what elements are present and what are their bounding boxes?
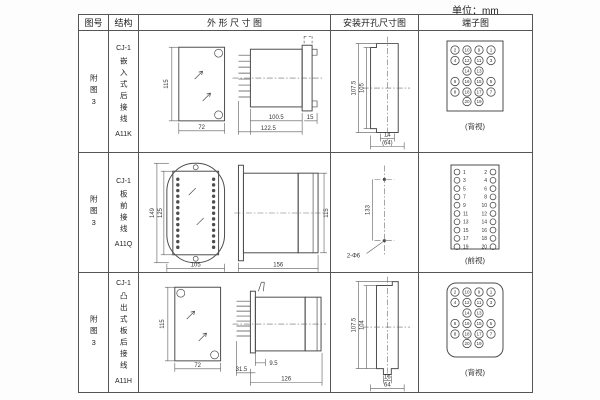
dim-side-height: 115 xyxy=(324,207,330,217)
dim-front-width: 72 xyxy=(194,363,201,369)
svg-text:19: 19 xyxy=(463,244,469,250)
svg-text:5: 5 xyxy=(490,321,493,326)
dim-side-d3: 126 xyxy=(281,377,292,383)
row2-terminal-cell: (前视) 1357911131517192468101214161820 xyxy=(419,153,532,273)
dim-side-d2: 9.5 xyxy=(269,361,278,367)
terminal-pin xyxy=(490,210,496,216)
glass-mark xyxy=(189,188,204,225)
terminal-caption: (背视) xyxy=(465,121,485,131)
svg-text:7: 7 xyxy=(490,89,493,94)
row2-fig-no-text: 附图3 xyxy=(90,195,98,231)
terminal-pin xyxy=(454,235,460,241)
terminal-pin xyxy=(454,218,460,224)
terminal-pin xyxy=(454,210,460,216)
svg-text:17: 17 xyxy=(476,89,482,94)
svg-text:3: 3 xyxy=(490,300,493,305)
svg-text:5: 5 xyxy=(490,79,493,84)
dim-side-depth2: 122.5 xyxy=(261,125,277,131)
dim-mounting-v1: 107.5 xyxy=(352,317,358,333)
svg-text:17: 17 xyxy=(463,236,469,242)
hole-center xyxy=(383,178,386,181)
svg-text:11: 11 xyxy=(463,211,468,217)
dim-mounting-h2: (64) xyxy=(382,140,393,146)
svg-text:7: 7 xyxy=(490,332,493,337)
row1-mounting-drawing: 107.5 105 14 (64) xyxy=(331,31,418,153)
terminal-pin xyxy=(454,177,460,183)
svg-text:20: 20 xyxy=(464,341,470,346)
svg-text:3: 3 xyxy=(490,58,493,63)
row3-terminal-cell: (背视) 2468101214161820911131517191357 xyxy=(419,273,532,392)
row3-fig-no-text: 附图3 xyxy=(90,315,98,351)
row1-outline-drawing: 115 72 100.5 122.5 15 xyxy=(139,31,330,153)
svg-text:9: 9 xyxy=(478,290,481,295)
row2-mounting-drawing: 133 2-Φ6 xyxy=(331,153,418,273)
row1-structure: CJ-1 嵌入式后接线 A11K xyxy=(109,31,139,153)
row3-outline-drawing: 115 72 9.5 31.5 126 xyxy=(139,273,330,392)
svg-text:4: 4 xyxy=(454,58,457,63)
row3-terminal-diagram: (背视) 2468101214161820911131517191357 xyxy=(419,273,532,392)
dim-hole-spacing: 133 xyxy=(366,204,372,215)
svg-text:1: 1 xyxy=(490,47,493,52)
terminal-pin xyxy=(490,202,496,208)
svg-text:10: 10 xyxy=(481,203,487,209)
svg-text:13: 13 xyxy=(476,311,482,316)
svg-text:2: 2 xyxy=(454,47,457,52)
svg-text:4: 4 xyxy=(454,300,457,305)
row1-fig-no: 附图3 xyxy=(79,31,109,153)
screw-hole xyxy=(215,49,223,57)
terminal-pin xyxy=(490,169,496,175)
terminal-circles: 2468101214161820911131517191357 xyxy=(451,45,495,105)
dim-front-width: 72 xyxy=(198,124,205,130)
col-header-mounting: 安装开孔尺寸图 xyxy=(331,15,419,31)
svg-text:18: 18 xyxy=(481,236,487,242)
indicator-arrow-icon xyxy=(199,333,207,341)
row1-outline-cell: 115 72 100.5 122.5 15 xyxy=(139,31,331,153)
row3-mounting-drawing: 107.5 104 16 64 xyxy=(331,273,418,392)
screw-hole xyxy=(215,110,223,118)
col-header-outline: 外 形 尺 寸 图 xyxy=(139,15,331,31)
row3-structure-title: CJ-1 xyxy=(116,280,131,287)
terminal-pin xyxy=(490,177,496,183)
dim-side-length: 156 xyxy=(273,262,284,268)
terminal-caption: (背视) xyxy=(465,367,485,377)
svg-text:1: 1 xyxy=(490,290,493,295)
dim-side-d1: 31.5 xyxy=(236,367,248,373)
svg-text:9: 9 xyxy=(463,203,466,209)
svg-text:1: 1 xyxy=(463,169,466,175)
row2-structure-title: CJ-1 xyxy=(116,178,131,185)
svg-text:11: 11 xyxy=(477,300,482,305)
svg-text:6: 6 xyxy=(454,321,457,326)
svg-text:19: 19 xyxy=(476,341,482,346)
svg-text:16: 16 xyxy=(481,227,487,233)
svg-text:9: 9 xyxy=(478,47,481,52)
svg-text:15: 15 xyxy=(463,227,469,233)
svg-text:2: 2 xyxy=(454,290,457,295)
terminal-pin xyxy=(490,218,496,224)
row1-structure-code: A11K xyxy=(115,131,132,138)
mounting-hole xyxy=(193,256,198,261)
dim-side-depth3: 15 xyxy=(307,114,314,120)
svg-text:11: 11 xyxy=(477,58,482,63)
indicator-arrow-icon xyxy=(195,71,203,79)
row1-terminal-cell: (背视) 2468101214161820911131517191357 xyxy=(419,31,532,153)
svg-text:20: 20 xyxy=(464,99,470,104)
svg-text:16: 16 xyxy=(464,79,470,84)
dim-side-depth1: 100.5 xyxy=(269,114,285,120)
svg-text:15: 15 xyxy=(476,321,482,326)
terminal-pin xyxy=(490,194,496,200)
row3-mounting-cell: 107.5 104 16 64 xyxy=(331,273,419,392)
dim-front-height: 115 xyxy=(164,78,170,88)
row2-terminal-diagram: (前视) 1357911131517192468101214161820 xyxy=(419,153,532,273)
row1-fig-no-text: 附图3 xyxy=(90,74,98,110)
row1-mounting-cell: 107.5 105 14 (64) xyxy=(331,31,419,153)
svg-text:2: 2 xyxy=(484,169,487,175)
dim-mounting-v2: 105 xyxy=(360,82,366,93)
row2-structure-code: A11Q xyxy=(115,241,132,248)
terminal-pin xyxy=(454,194,460,200)
row2-structure-desc: 板前接线 xyxy=(120,190,128,236)
dim-front-w: 105 xyxy=(191,262,202,268)
svg-text:4: 4 xyxy=(484,178,487,184)
svg-text:8: 8 xyxy=(484,194,487,200)
row1-structure-title: CJ-1 xyxy=(116,45,131,52)
svg-text:12: 12 xyxy=(464,58,470,63)
dim-mounting-h1: 16 xyxy=(384,374,391,380)
mounting-hole xyxy=(193,164,198,169)
row1-terminal-diagram: (背视) 2468101214161820911131517191357 xyxy=(419,31,532,153)
row3-structure-desc: 凸出式板后接线 xyxy=(120,292,128,373)
col-header-terminal: 端子图 xyxy=(419,15,532,31)
col-header-fig-no: 图号 xyxy=(79,15,109,31)
svg-text:18: 18 xyxy=(464,89,470,94)
indicator-arrow-icon xyxy=(203,92,211,100)
row2-outline-drawing: 149 125 105 156 115 xyxy=(139,153,330,273)
terminal-pin xyxy=(454,169,460,175)
indicator-arrow-icon xyxy=(187,311,195,319)
svg-text:5: 5 xyxy=(463,186,466,192)
terminal-pin xyxy=(490,235,496,241)
svg-text:12: 12 xyxy=(481,211,487,217)
dim-front-height: 115 xyxy=(160,319,166,329)
svg-text:19: 19 xyxy=(476,99,482,104)
col-header-structure: 结构 xyxy=(109,15,139,31)
terminal-pin xyxy=(490,185,496,191)
svg-text:14: 14 xyxy=(464,311,470,316)
screw-hole xyxy=(177,289,185,297)
handle-mark xyxy=(258,282,264,291)
svg-text:7: 7 xyxy=(463,194,466,200)
svg-text:17: 17 xyxy=(476,332,482,337)
dim-mounting-v2: 104 xyxy=(360,319,366,330)
dim-front-h2: 125 xyxy=(158,207,164,218)
svg-text:12: 12 xyxy=(464,300,470,305)
dim-front-h1: 149 xyxy=(150,207,156,218)
terminal-fins xyxy=(236,301,250,336)
dim-mounting-v1: 107.5 xyxy=(352,79,358,95)
row3-structure-code: A11H xyxy=(115,378,132,385)
svg-text:8: 8 xyxy=(454,332,457,337)
svg-text:14: 14 xyxy=(464,68,470,73)
row1-structure-desc: 嵌入式后接线 xyxy=(120,57,128,126)
row3-outline-cell: 115 72 9.5 31.5 126 xyxy=(139,273,331,392)
row3-fig-no: 附图3 xyxy=(79,273,109,392)
terminal-pin xyxy=(454,185,460,191)
svg-text:6: 6 xyxy=(484,186,487,192)
svg-text:10: 10 xyxy=(464,47,470,52)
terminal-fins xyxy=(238,55,250,97)
terminal-circles: 1357911131517192468101214161820 xyxy=(454,169,496,250)
svg-text:6: 6 xyxy=(454,79,457,84)
terminal-caption: (前视) xyxy=(465,255,485,265)
row2-mounting-cell: 133 2-Φ6 xyxy=(331,153,419,273)
svg-text:10: 10 xyxy=(464,290,470,295)
svg-text:20: 20 xyxy=(481,244,487,250)
terminal-pin xyxy=(454,202,460,208)
terminal-circles: 2468101214161820911131517191357 xyxy=(451,288,495,348)
svg-text:18: 18 xyxy=(464,332,470,337)
dim-mounting-h2: 64 xyxy=(384,382,391,388)
dimension-table: 图号 结构 外 形 尺 寸 图 安装开孔尺寸图 端子图 附图3 CJ-1 嵌入式… xyxy=(78,14,533,393)
row2-structure: CJ-1 板前接线 A11Q xyxy=(109,153,139,273)
datasheet-page: 单位：mm 图号 结构 外 形 尺 寸 图 安装开孔尺寸图 端子图 附图3 CJ… xyxy=(0,0,600,400)
terminal-pin xyxy=(490,227,496,233)
row2-outline-cell: 149 125 105 156 115 xyxy=(139,153,331,273)
svg-text:14: 14 xyxy=(481,219,487,225)
svg-text:8: 8 xyxy=(454,89,457,94)
svg-text:13: 13 xyxy=(463,219,469,225)
screw-hole xyxy=(211,351,219,359)
svg-text:13: 13 xyxy=(476,68,482,73)
svg-text:16: 16 xyxy=(464,321,470,326)
terminal-pin xyxy=(454,227,460,233)
dim-mounting-h1: 14 xyxy=(384,132,391,138)
row3-structure: CJ-1 凸出式板后接线 A11H xyxy=(109,273,139,392)
row2-fig-no: 附图3 xyxy=(79,153,109,273)
svg-text:15: 15 xyxy=(476,79,482,84)
hole-spec-label: 2-Φ6 xyxy=(347,253,361,259)
svg-text:3: 3 xyxy=(463,178,466,184)
